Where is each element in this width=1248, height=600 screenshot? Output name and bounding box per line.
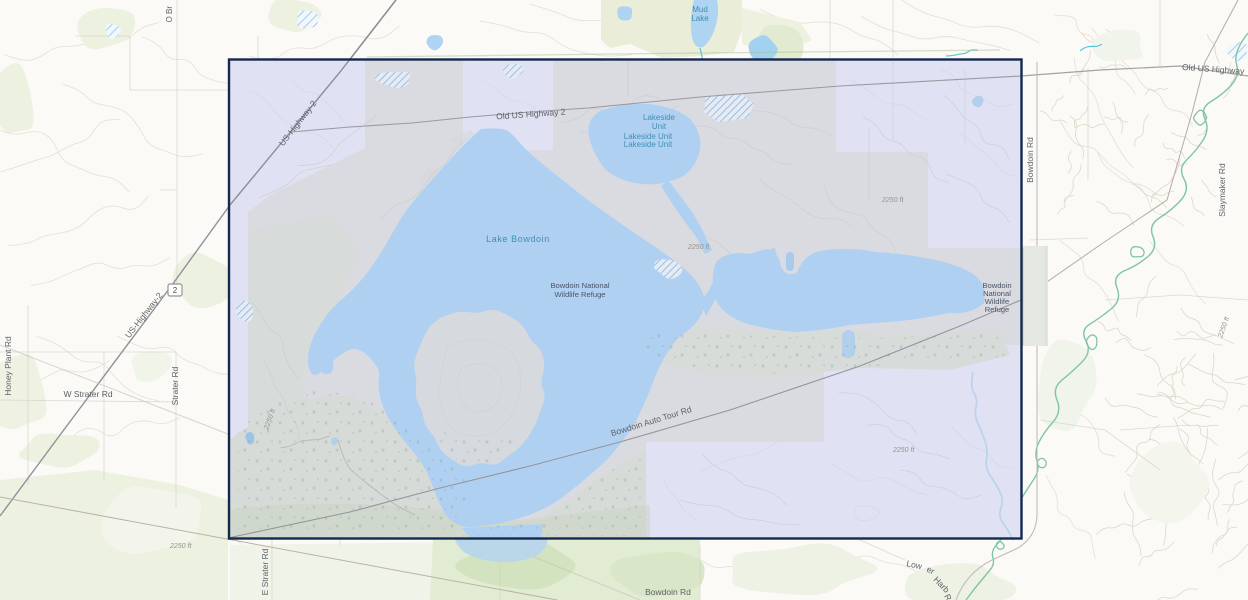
svg-text:2250 ft: 2250 ft [687, 244, 710, 251]
svg-text:Refuge: Refuge [985, 305, 1010, 314]
svg-text:Wildlife Refuge: Wildlife Refuge [554, 290, 605, 299]
svg-text:Unit: Unit [652, 122, 667, 131]
svg-text:2: 2 [173, 286, 178, 295]
svg-text:Bowdoin Rd: Bowdoin Rd [1025, 137, 1035, 183]
svg-text:Bowdoin National: Bowdoin National [550, 281, 609, 290]
svg-text:O Br: O Br [165, 6, 174, 23]
svg-text:Lake: Lake [691, 14, 709, 23]
svg-text:E Strater Rd: E Strater Rd [260, 548, 270, 595]
svg-text:2250 ft: 2250 ft [892, 447, 915, 454]
svg-text:2250 ft: 2250 ft [169, 543, 192, 550]
svg-text:Strater Rd: Strater Rd [170, 366, 180, 405]
svg-text:2250 ft: 2250 ft [881, 197, 904, 204]
svg-text:W Strater Rd: W Strater Rd [63, 389, 112, 399]
svg-text:Mud: Mud [692, 5, 708, 14]
svg-text:Lakeside Unit: Lakeside Unit [624, 140, 673, 149]
svg-text:Lake Bowdoin: Lake Bowdoin [486, 234, 550, 244]
svg-text:Bowdoin Rd: Bowdoin Rd [645, 587, 691, 597]
svg-text:Lakeside: Lakeside [643, 113, 676, 122]
svg-text:Slaymaker Rd: Slaymaker Rd [1217, 163, 1227, 217]
svg-text:Honey Plant Rd: Honey Plant Rd [3, 336, 13, 396]
